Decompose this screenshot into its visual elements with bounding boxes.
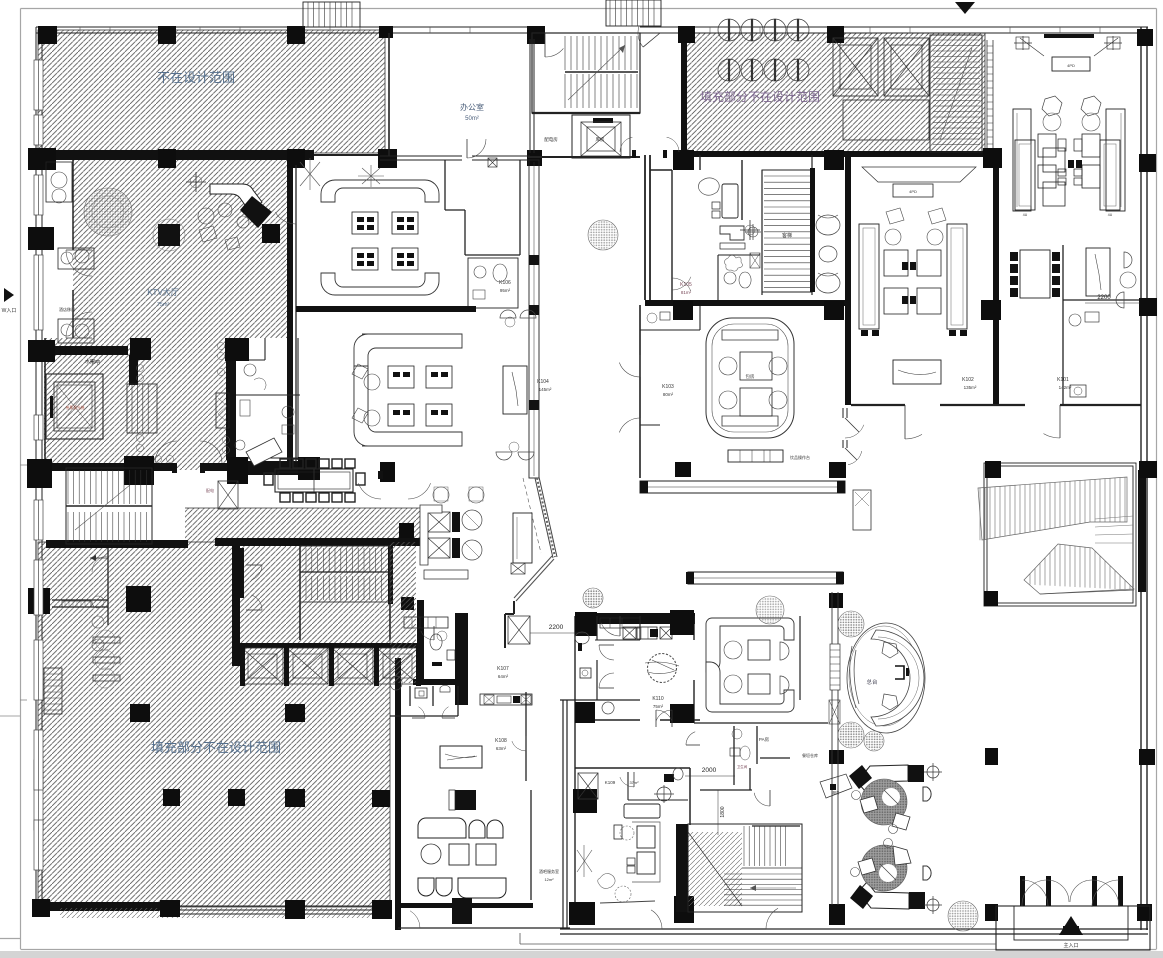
svg-text:2200: 2200 [1097,295,1111,301]
svg-text:填充部分不在设计范围: 填充部分不在设计范围 [151,740,281,755]
svg-text:95m²: 95m² [500,288,511,293]
svg-text:K106: K106 [499,280,511,286]
svg-text:K104: K104 [537,379,549,385]
svg-text:办公室: 办公室 [460,102,484,112]
svg-text:37m²: 37m² [629,780,639,785]
svg-text:75m²: 75m² [157,302,170,308]
svg-text:2200: 2200 [549,624,564,631]
svg-text:客梯: 客梯 [782,232,792,239]
svg-text:64m²: 64m² [498,674,509,679]
svg-text:81m²: 81m² [681,290,692,295]
svg-text:填充部分不在设计范围: 填充部分不在设计范围 [700,89,820,104]
svg-text:KTV大厅: KTV大厅 [147,287,179,297]
svg-text:主入口: 主入口 [1063,942,1078,949]
svg-text:50m²: 50m² [465,116,479,122]
svg-text:4PD: 4PD [909,189,917,194]
svg-text:K102: K102 [962,377,974,383]
svg-text:服务: 服务 [833,790,841,795]
svg-text:卫生间: 卫生间 [737,764,748,769]
svg-text:餐垣仓库: 餐垣仓库 [802,752,818,758]
svg-text:水吧: 水吧 [85,358,95,365]
svg-text:K101: K101 [1057,377,1069,383]
svg-text:不在设计范围: 不在设计范围 [157,70,235,85]
svg-text:PA房: PA房 [759,736,770,743]
svg-text:W入口: W入口 [2,308,17,314]
svg-text:135m²: 135m² [964,385,977,390]
svg-text:总台: 总台 [866,678,878,686]
svg-text:K107: K107 [497,666,509,672]
svg-text:包房: 包房 [746,373,755,380]
svg-text:4U: 4U [1023,213,1028,217]
svg-text:配电: 配电 [206,487,214,493]
svg-text:K110: K110 [652,696,664,702]
svg-text:12m²: 12m² [544,877,554,882]
svg-text:4U: 4U [1108,213,1113,217]
svg-text:酒店移门: 酒店移门 [59,306,75,312]
svg-text:K109: K109 [605,780,616,785]
svg-text:亲景观光梯: 亲景观光梯 [66,405,85,410]
svg-text:配电房: 配电房 [544,136,558,143]
svg-text:库房: 库房 [596,136,605,143]
svg-text:K108: K108 [495,738,507,744]
svg-text:饮品操作台: 饮品操作台 [790,454,810,460]
svg-text:75m²: 75m² [653,704,664,709]
svg-text:80m²: 80m² [663,392,674,397]
svg-text:1800: 1800 [720,806,726,817]
svg-text:酒吧服务室: 酒吧服务室 [539,868,559,874]
svg-text:145m²: 145m² [539,387,552,392]
svg-text:K103: K103 [662,384,674,390]
svg-text:4PD: 4PD [1067,63,1075,68]
svg-text:2000: 2000 [702,767,717,774]
svg-text:63m²: 63m² [496,746,507,751]
